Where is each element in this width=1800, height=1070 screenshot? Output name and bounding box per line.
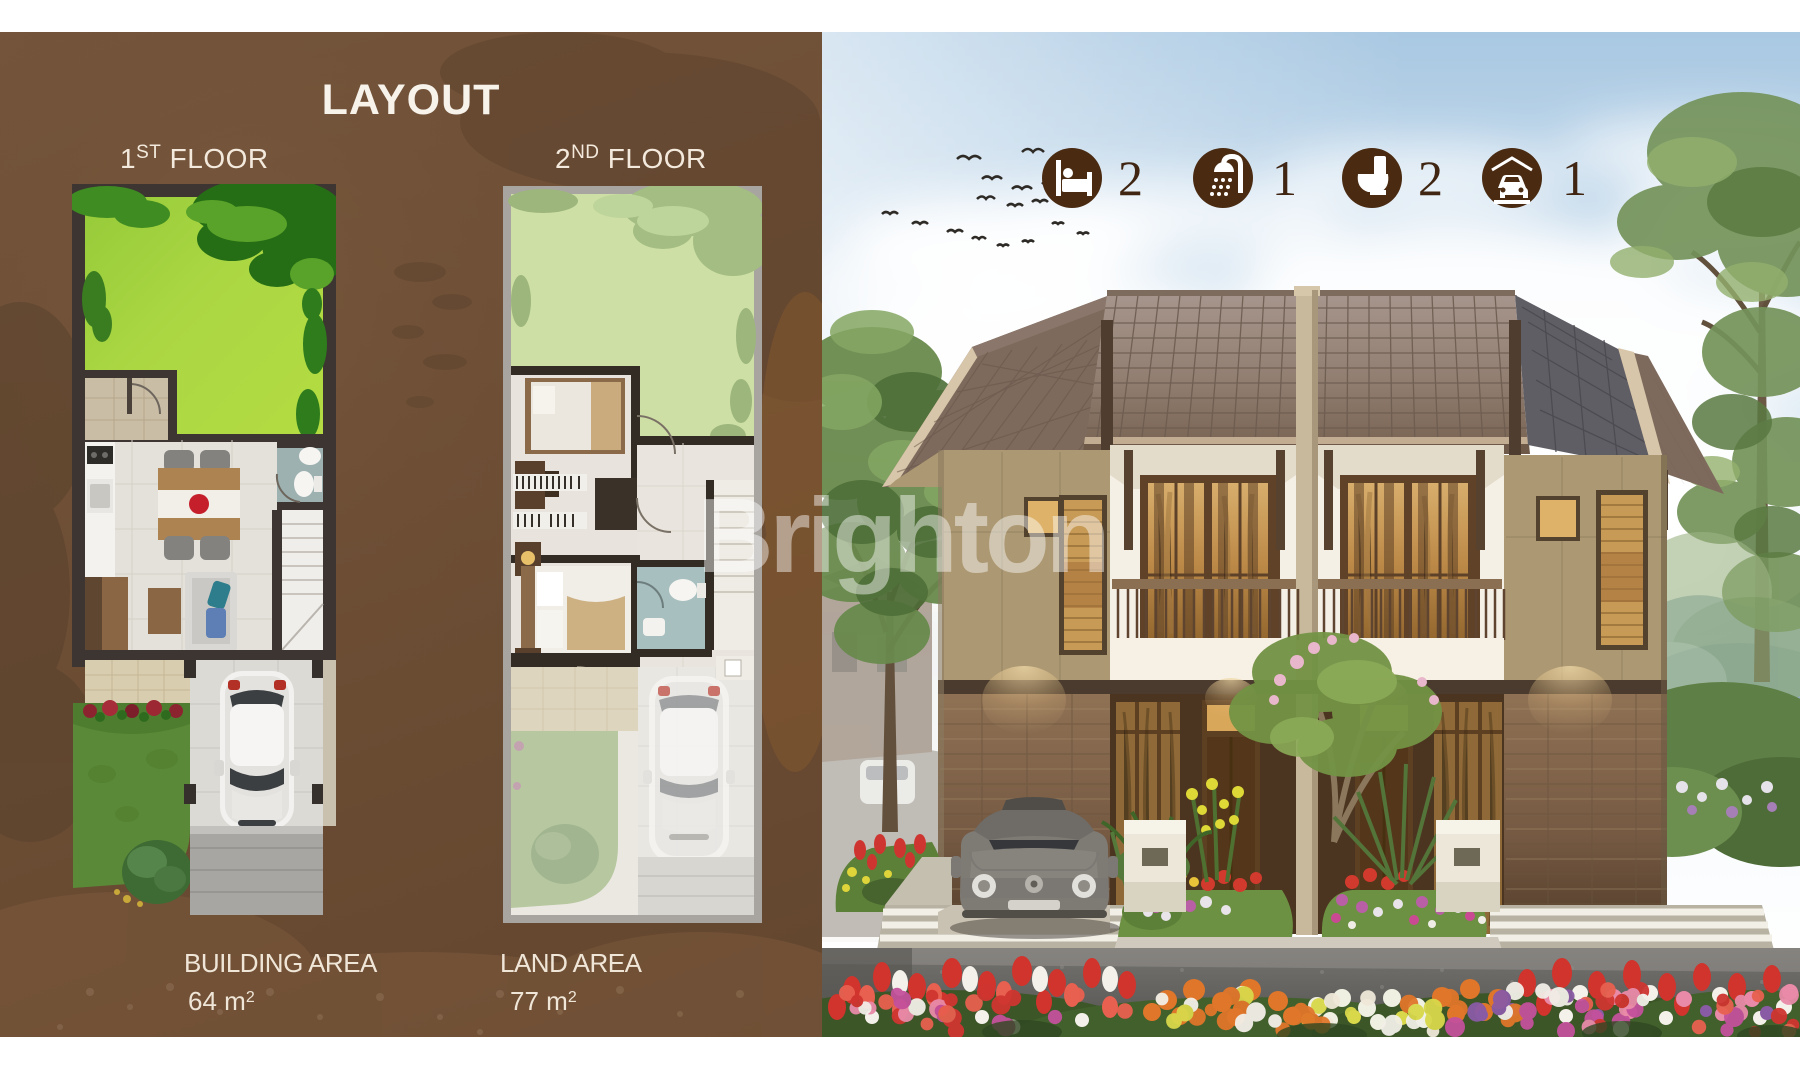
svg-text:1: 1: [1562, 150, 1587, 206]
svg-text:2: 2: [1418, 150, 1443, 206]
svg-text:1: 1: [1272, 150, 1297, 206]
svg-text:2: 2: [1118, 150, 1143, 206]
